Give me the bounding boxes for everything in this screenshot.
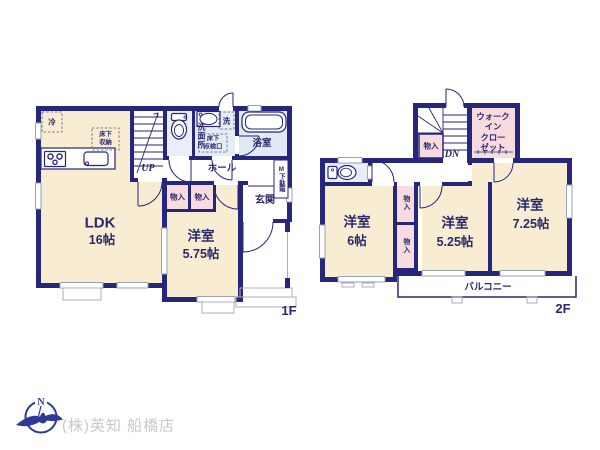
bedroom-2f-middle <box>422 186 488 271</box>
closet-1f-right <box>191 185 213 209</box>
wash-basin-icon <box>197 112 220 127</box>
toilet-door-arc-1f <box>169 160 191 182</box>
closet-1f-left <box>167 185 188 209</box>
balcony-outline <box>398 276 576 303</box>
toilet-icon-2f <box>328 166 356 180</box>
back-door-arc <box>219 93 233 107</box>
floor2-plan <box>320 89 577 303</box>
stair-closet <box>419 134 443 158</box>
shoe-cabinet-box <box>274 160 288 198</box>
washroom-door-arc <box>212 160 232 180</box>
closet-2f-upper <box>397 186 414 222</box>
bird-icon <box>16 413 63 427</box>
floorplan-page: N LDK 16帖 洋室 5.75帖 ホール 玄関 浴室 洗面所 洗 冷 床下 … <box>0 0 600 450</box>
closet-2f-lower <box>397 225 414 268</box>
toilet-icon-1f <box>172 114 187 140</box>
floor1-plan <box>36 93 297 313</box>
floorplan-graphics: N <box>0 0 600 450</box>
company-name: (株)英知 船橋店 <box>62 415 175 436</box>
company-logo: N <box>16 396 63 433</box>
entrance-door-arc <box>243 222 273 252</box>
kitchen-sink-icon <box>84 152 108 166</box>
kitchen-counter-icon <box>41 148 115 169</box>
bathtub-icon <box>242 112 286 132</box>
bedroom-left-door-arc <box>372 160 394 182</box>
floor2-room-fills <box>325 108 567 277</box>
bedroom-2f-left <box>325 186 393 277</box>
